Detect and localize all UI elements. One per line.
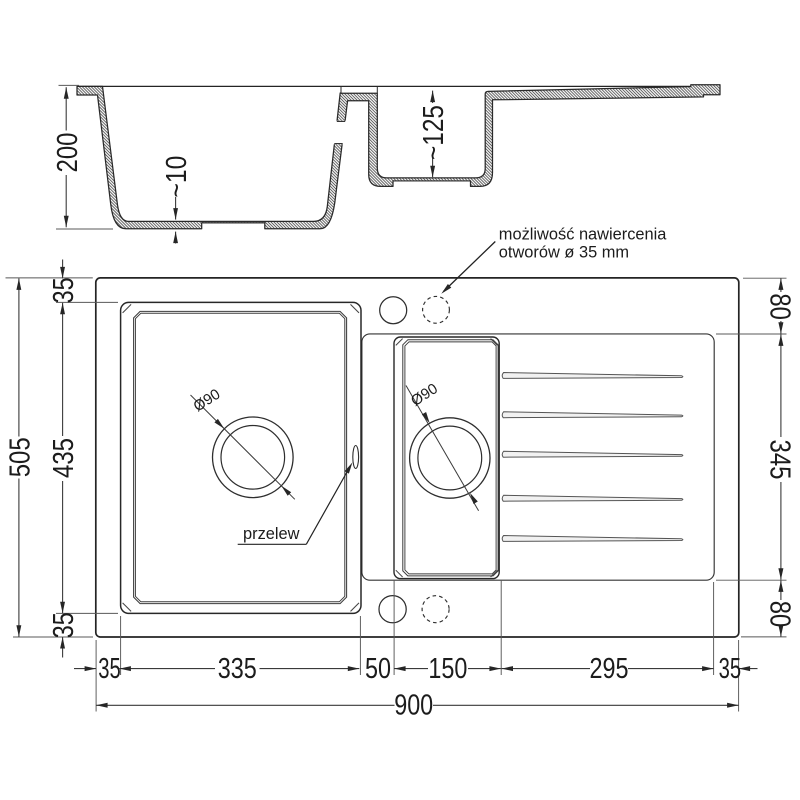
svg-text:przelew: przelew (243, 525, 300, 543)
svg-text:80: 80 (763, 293, 795, 320)
svg-text:50: 50 (365, 653, 391, 685)
svg-text:35: 35 (48, 277, 80, 303)
svg-text:35: 35 (719, 653, 742, 685)
svg-text:900: 900 (394, 690, 433, 722)
svg-text:345: 345 (763, 440, 795, 480)
svg-text:~125: ~125 (418, 105, 450, 160)
svg-text:~10: ~10 (161, 156, 193, 198)
svg-text:35: 35 (48, 612, 80, 638)
svg-text:200: 200 (52, 133, 84, 173)
svg-text:435: 435 (48, 438, 80, 478)
svg-text:35: 35 (98, 653, 121, 685)
svg-text:możliwość nawiercenia: możliwość nawiercenia (499, 226, 667, 244)
svg-text:295: 295 (590, 653, 629, 685)
svg-text:505: 505 (5, 437, 37, 477)
svg-text:150: 150 (428, 653, 467, 685)
svg-text:335: 335 (218, 653, 257, 685)
svg-text:otworów ø 35 mm: otworów ø 35 mm (499, 244, 629, 262)
svg-text:80: 80 (763, 601, 795, 628)
